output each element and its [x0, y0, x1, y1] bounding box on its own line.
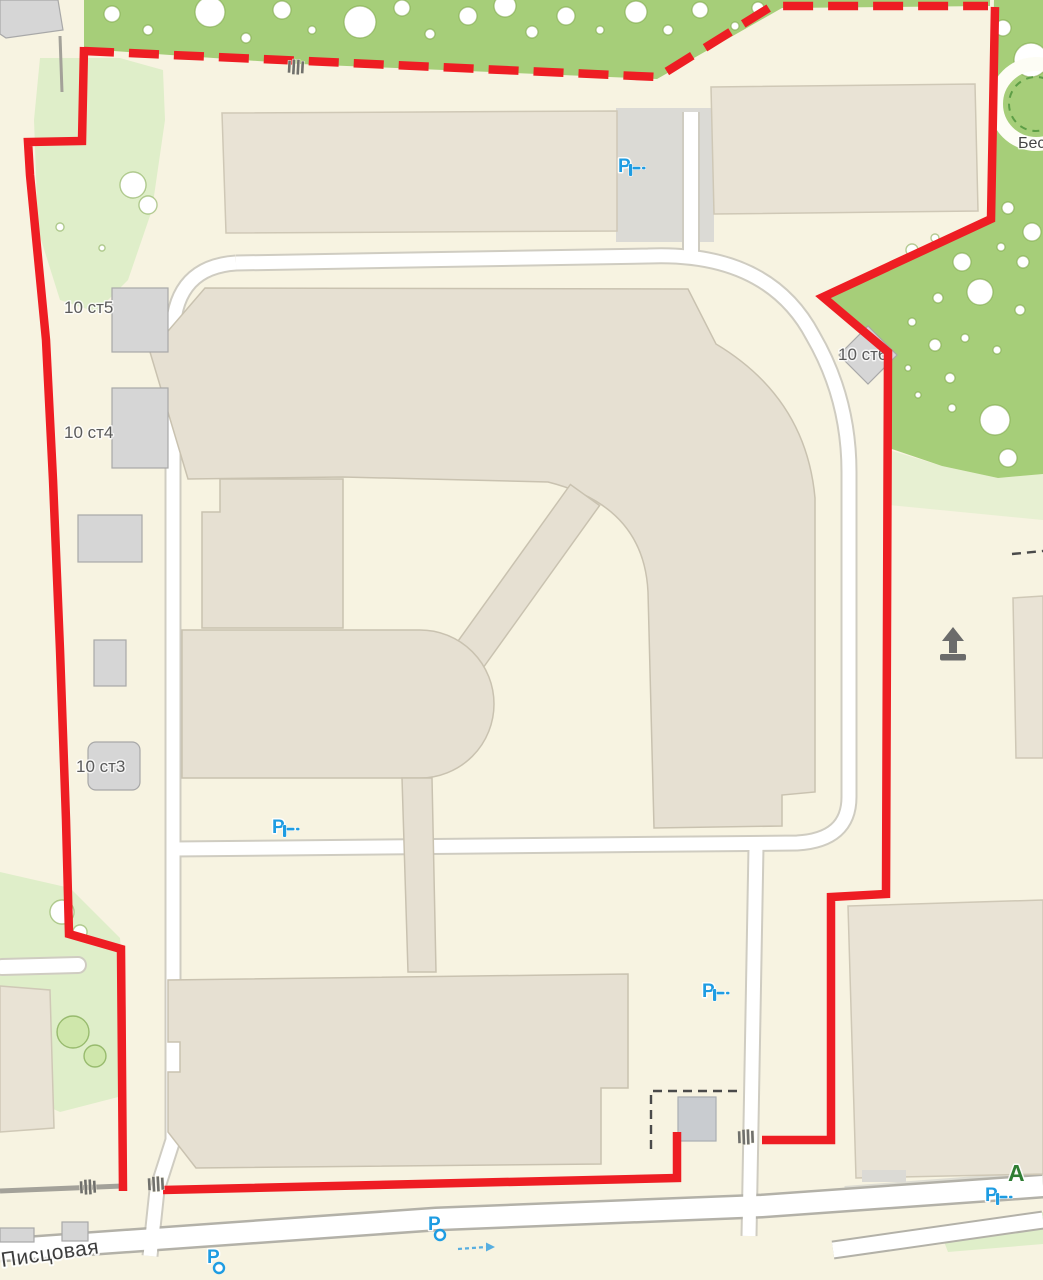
building-annex [202, 479, 343, 628]
building-small-construction [678, 1097, 716, 1141]
bus-stop-label[interactable]: А [1008, 1160, 1025, 1186]
building-small-2 [94, 640, 126, 686]
building-left-edge-partial [0, 986, 54, 1132]
label-10s5: 10 ст5 [64, 298, 113, 317]
building-top-right [711, 84, 978, 214]
building-bottom-right-large [848, 900, 1043, 1178]
building-connector-stem [402, 778, 436, 972]
building-10s5 [112, 288, 168, 352]
building-round-end [182, 630, 494, 778]
building-bottom-large [168, 974, 628, 1168]
label-10s4: 10 ст4 [64, 423, 113, 442]
map-viewport[interactable]: P P [0, 0, 1043, 1280]
building-right-edge [1013, 596, 1043, 758]
building-small-1 [78, 515, 142, 562]
label-greenery-area: Бес [1018, 135, 1043, 152]
map-canvas[interactable]: P P [0, 0, 1043, 1280]
building-bottom-right-annex [862, 1170, 906, 1182]
building-top-long [222, 111, 617, 233]
building-street-north-1 [0, 1228, 34, 1242]
label-10s3: 10 ст3 [76, 757, 125, 776]
building-10s4 [112, 388, 168, 468]
